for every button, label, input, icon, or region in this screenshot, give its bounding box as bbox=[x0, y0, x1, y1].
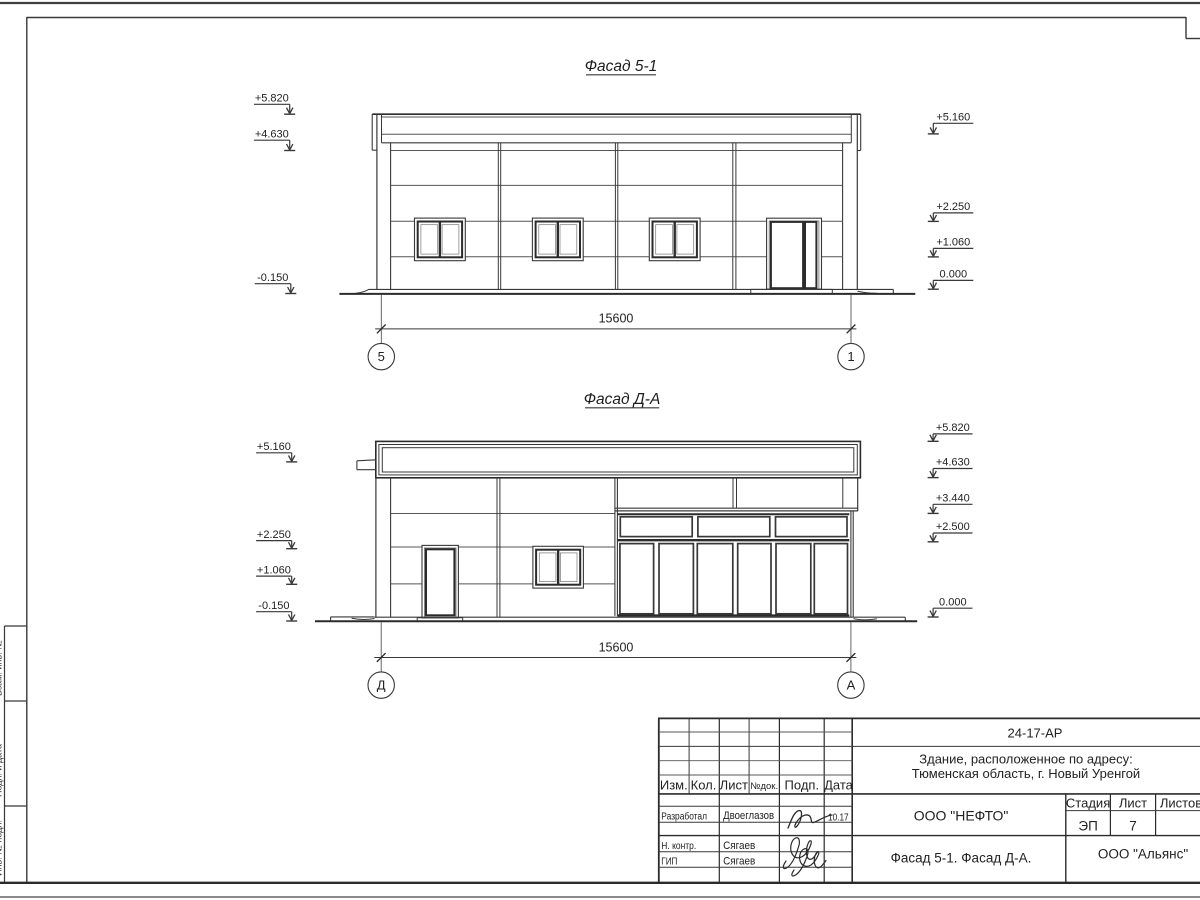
svg-text:Изм.: Изм. bbox=[660, 778, 688, 793]
svg-text:-0.150: -0.150 bbox=[258, 600, 289, 612]
svg-text:+3.440: +3.440 bbox=[936, 493, 970, 505]
svg-text:Лист: Лист bbox=[1119, 796, 1147, 811]
svg-text:ООО "Альянс": ООО "Альянс" bbox=[1098, 847, 1188, 862]
svg-text:Инв. № подл.: Инв. № подл. bbox=[0, 820, 4, 876]
svg-text:Здание, расположенное по адрес: Здание, расположенное по адресу: bbox=[919, 752, 1132, 767]
svg-text:Дата: Дата bbox=[824, 778, 854, 793]
svg-text:Тюменская область, г. Новый Ур: Тюменская область, г. Новый Уренгой bbox=[912, 766, 1140, 781]
svg-text:0.000: 0.000 bbox=[940, 269, 968, 281]
svg-text:+5.820: +5.820 bbox=[936, 422, 970, 434]
svg-text:Взам. инв. №: Взам. инв. № bbox=[0, 640, 4, 696]
svg-text:Д: Д bbox=[377, 678, 386, 693]
svg-text:+1.060: +1.060 bbox=[936, 237, 970, 249]
svg-text:10.17: 10.17 bbox=[828, 811, 849, 823]
svg-text:ГИП: ГИП bbox=[661, 856, 677, 867]
svg-text:5: 5 bbox=[378, 349, 385, 364]
svg-text:+2.250: +2.250 bbox=[257, 529, 291, 541]
svg-text:Стадия: Стадия bbox=[1066, 796, 1110, 811]
svg-text:-0.150: -0.150 bbox=[257, 272, 288, 284]
svg-text:Кол.: Кол. bbox=[691, 778, 717, 793]
svg-text:Фасад 5-1. Фасад Д-А.: Фасад 5-1. Фасад Д-А. bbox=[891, 851, 1032, 866]
svg-text:Разработал: Разработал bbox=[661, 810, 707, 822]
svg-text:1: 1 bbox=[847, 349, 854, 364]
svg-text:15600: 15600 bbox=[599, 641, 634, 655]
svg-text:15600: 15600 bbox=[599, 312, 634, 326]
svg-text:24-17-АР: 24-17-АР bbox=[1008, 726, 1063, 741]
svg-text:+2.500: +2.500 bbox=[936, 521, 970, 533]
svg-text:Сягаев: Сягаев bbox=[723, 840, 755, 852]
svg-text:Двоеглазов: Двоеглазов bbox=[723, 810, 774, 822]
svg-text:ООО "НЕФТО": ООО "НЕФТО" bbox=[914, 808, 1009, 824]
svg-text:Н. контр.: Н. контр. bbox=[661, 841, 696, 852]
svg-text:Подп. и дата: Подп. и дата bbox=[0, 744, 4, 797]
svg-text:+1.060: +1.060 bbox=[257, 564, 291, 576]
svg-text:+4.630: +4.630 bbox=[255, 128, 289, 140]
svg-text:ЭП: ЭП bbox=[1078, 819, 1097, 834]
svg-text:+5.160: +5.160 bbox=[257, 441, 291, 453]
svg-text:0.000: 0.000 bbox=[939, 596, 967, 608]
svg-text:+4.630: +4.630 bbox=[936, 457, 970, 469]
svg-text:Листов: Листов bbox=[1160, 796, 1200, 811]
svg-text:№док.: №док. bbox=[750, 781, 778, 792]
svg-text:+2.250: +2.250 bbox=[936, 201, 970, 213]
svg-text:Сягаев: Сягаев bbox=[723, 855, 755, 867]
svg-text:+5.160: +5.160 bbox=[936, 112, 970, 124]
svg-text:7: 7 bbox=[1129, 819, 1137, 834]
svg-text:Подп.: Подп. bbox=[785, 778, 820, 793]
svg-text:Лист: Лист bbox=[720, 778, 748, 793]
svg-text:+5.820: +5.820 bbox=[255, 93, 289, 105]
svg-text:Фасад Д-А: Фасад Д-А bbox=[584, 391, 661, 408]
svg-text:А: А bbox=[847, 678, 856, 693]
svg-text:Фасад 5-1: Фасад 5-1 bbox=[585, 58, 658, 75]
